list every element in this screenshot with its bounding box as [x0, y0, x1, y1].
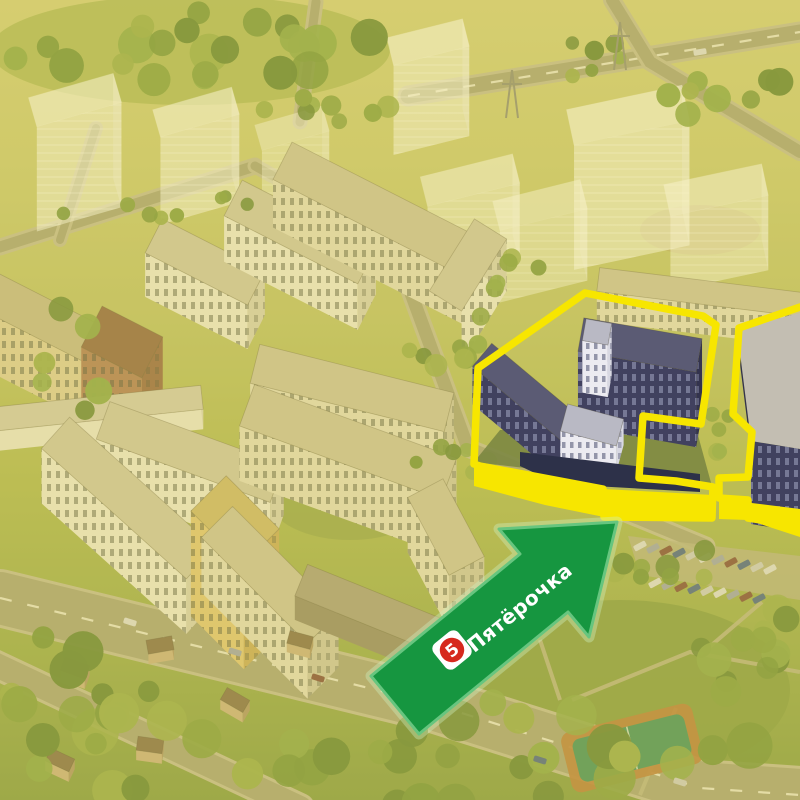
promo-aerial-image: Пятёрочка 5	[0, 0, 800, 800]
aerial-render-canvas: Пятёрочка 5	[0, 0, 800, 800]
building	[582, 319, 611, 397]
